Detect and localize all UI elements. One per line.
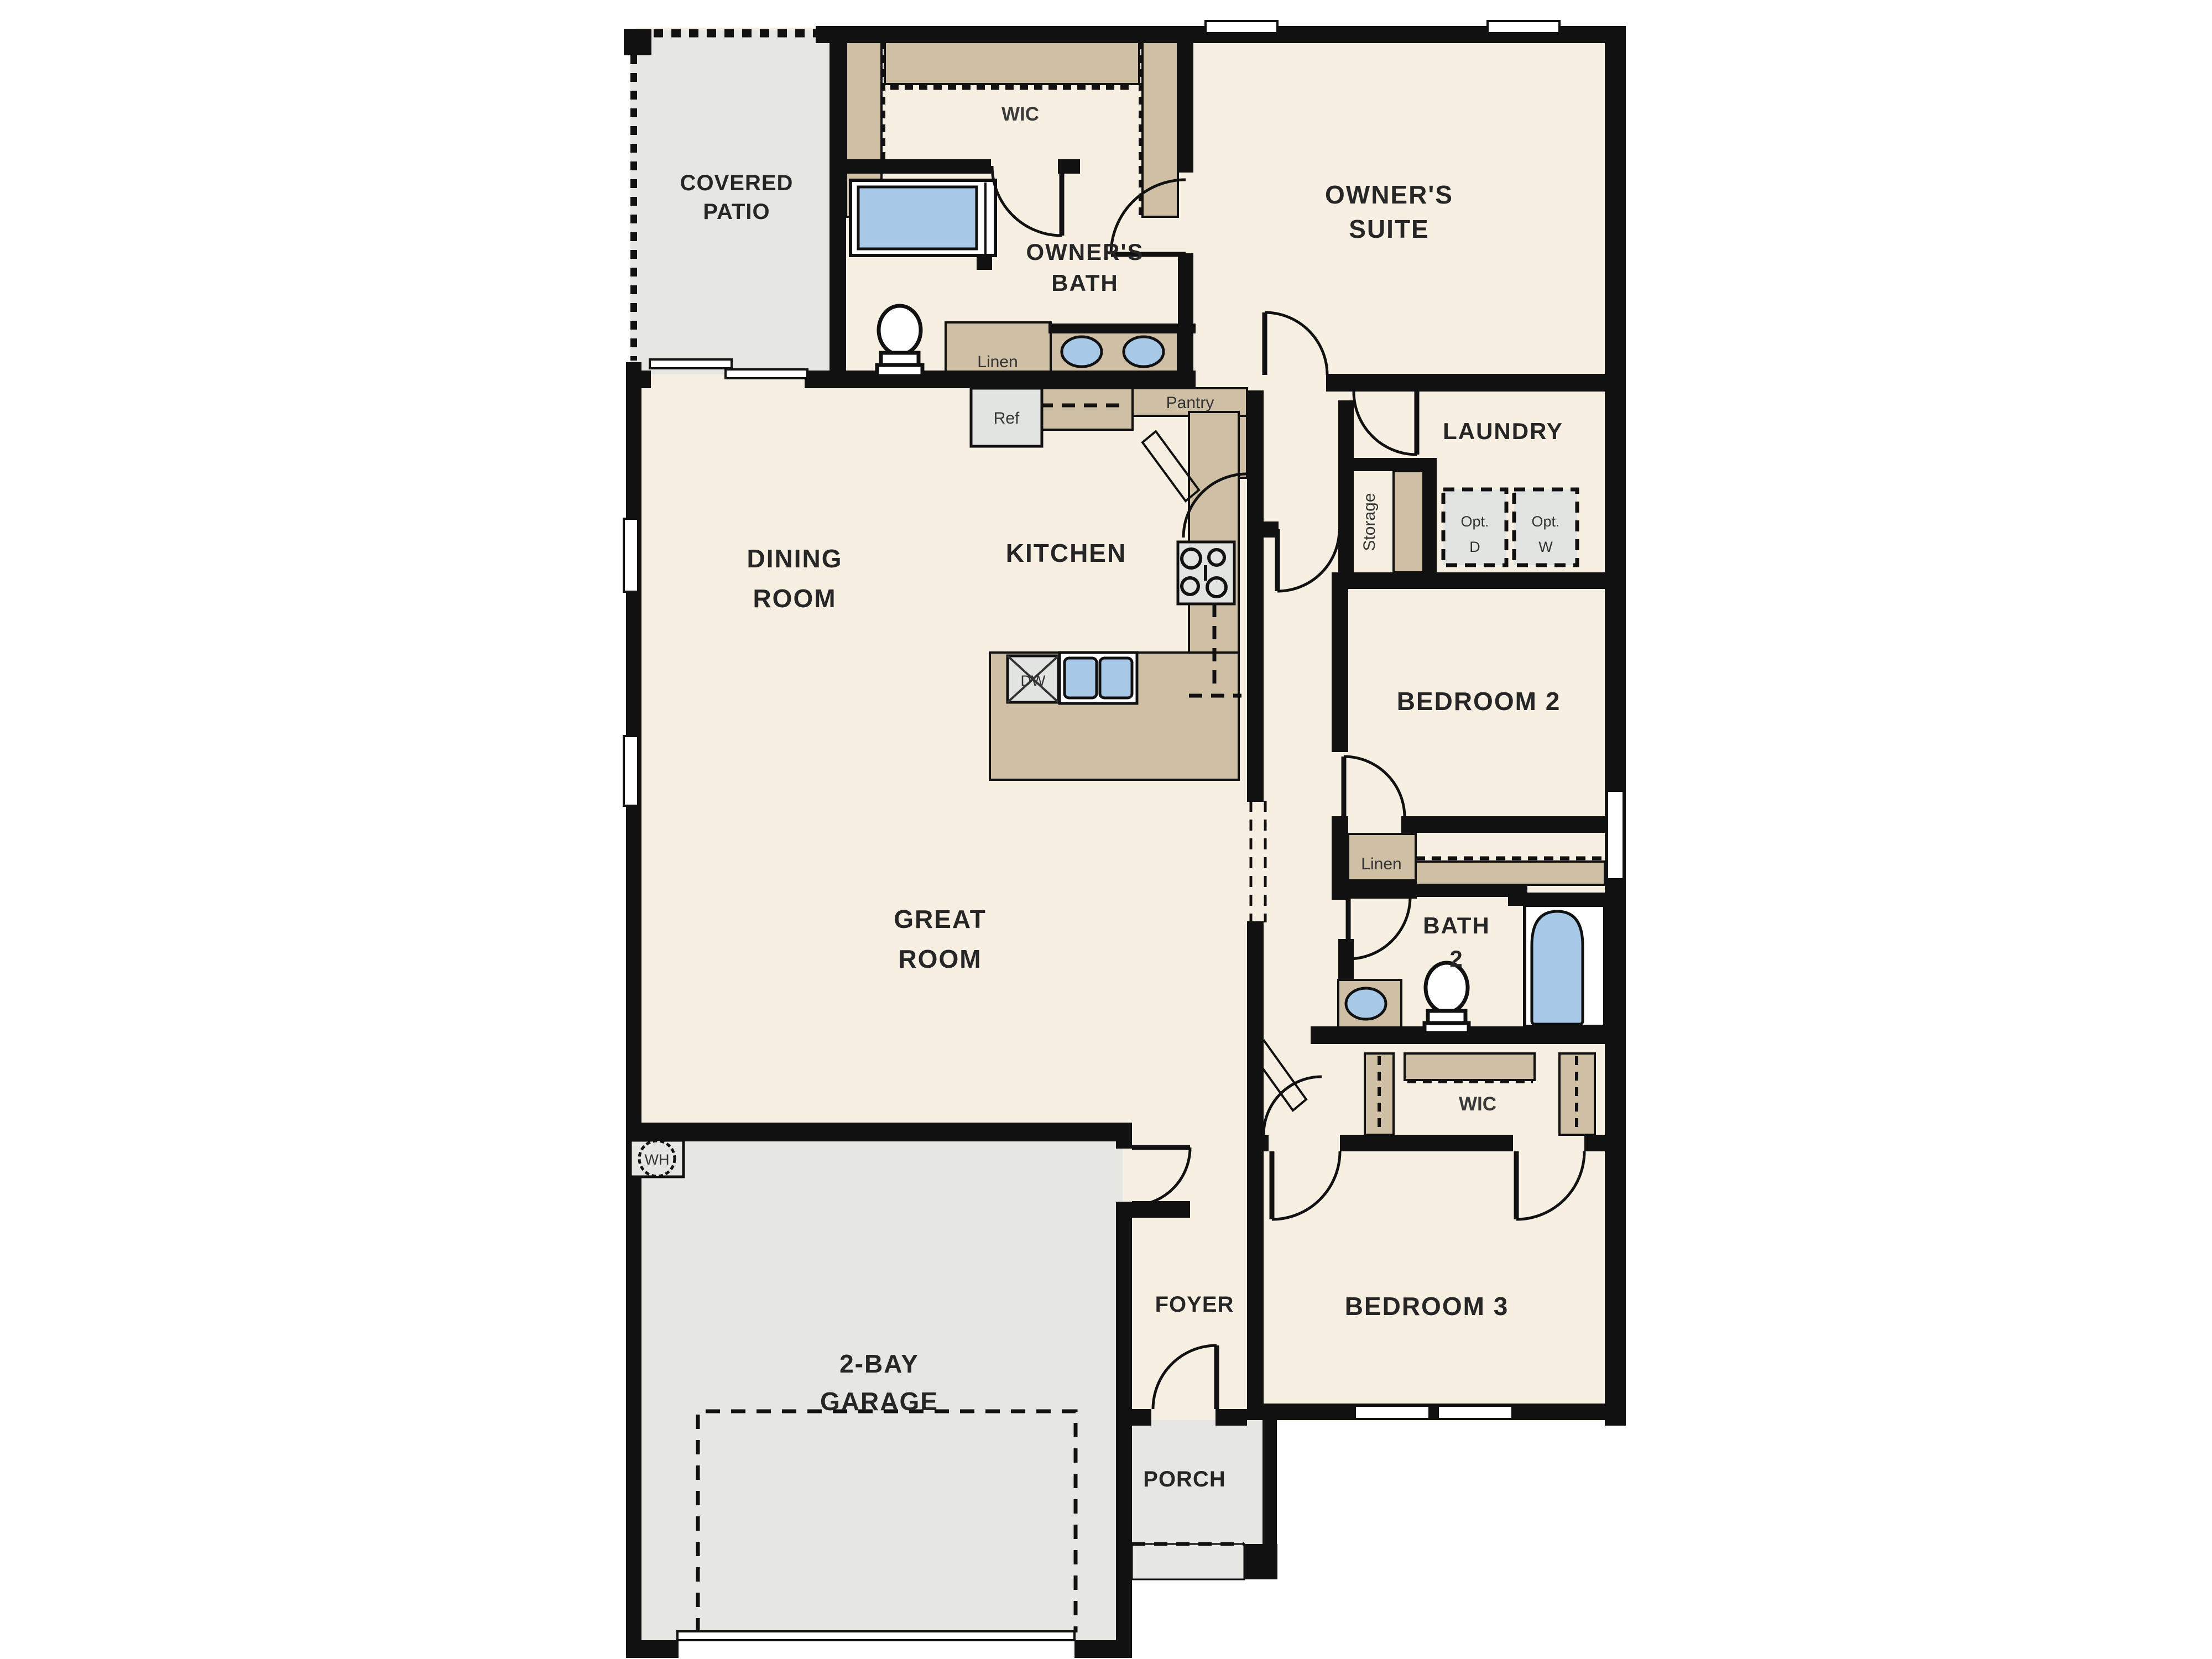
owners-sink-1: [1062, 337, 1102, 367]
great-room-label-1: GREAT: [894, 905, 987, 933]
cooktop: [1178, 542, 1234, 604]
wic-bedroom3-label: WIC: [1459, 1093, 1496, 1115]
ref-label: Ref: [994, 409, 1020, 427]
bedroom2-label: BEDROOM 2: [1397, 687, 1561, 716]
garage-label-1: 2-BAY: [839, 1349, 919, 1378]
opt-dryer-label-1: Opt.: [1460, 513, 1489, 530]
bath2-tub: [1525, 905, 1605, 1026]
bed2-closet-shelf: [1416, 862, 1605, 885]
opt-washer-label-2: W: [1538, 539, 1553, 555]
pantry-label: Pantry: [1166, 394, 1214, 412]
suite-window-2: [1488, 21, 1559, 33]
opt-dryer-label-2: D: [1469, 539, 1480, 555]
kitchen-label: KITCHEN: [1006, 539, 1126, 567]
owners-suite-label-1: OWNER'S: [1325, 180, 1453, 209]
suite-window-1: [1206, 21, 1277, 33]
foyer-label: FOYER: [1155, 1292, 1234, 1317]
wic2-shelf-top: [1405, 1053, 1535, 1080]
opt-washer-label-1: Opt.: [1531, 513, 1559, 530]
dining-window-1: [624, 519, 638, 592]
bedroom3-window-2: [1438, 1406, 1512, 1419]
covered-patio-label-2: PATIO: [703, 200, 770, 224]
water-heater-label: WH: [645, 1151, 670, 1168]
porch-step: [1132, 1544, 1244, 1579]
owners-toilet: [877, 306, 922, 376]
dining-room-label-1: DINING: [747, 544, 843, 573]
dining-room-label-2: ROOM: [753, 584, 836, 613]
linen-owner-label: Linen: [977, 353, 1018, 371]
bedroom2-window: [1607, 791, 1624, 879]
garage-floor: [636, 1133, 1123, 1640]
bath2-toilet: [1425, 963, 1469, 1033]
storage-label: Storage: [1360, 493, 1379, 551]
bath2-label-1: BATH: [1423, 912, 1490, 938]
kitchen-counter-north: [1042, 388, 1133, 430]
floor-plan: COVERED PATIO WIC OWNER'S BATH OWNER'S S…: [0, 0, 2212, 1659]
wic-shelf-top: [885, 39, 1139, 84]
bedroom3-window-1: [1355, 1406, 1430, 1419]
owners-suite-label-2: SUITE: [1349, 215, 1429, 243]
owners-bath-label-2: BATH: [1051, 270, 1119, 296]
dishwasher-label: DW: [1021, 672, 1046, 689]
bath2-sink: [1346, 988, 1386, 1019]
garage-door: [677, 1631, 1074, 1640]
wic-owner-label: WIC: [1001, 103, 1039, 125]
dining-window-2: [624, 736, 638, 806]
storage-shelf: [1394, 471, 1423, 572]
owners-sink-2: [1124, 337, 1164, 367]
covered-patio-label-1: COVERED: [680, 171, 794, 195]
owners-shower: [851, 180, 995, 255]
kitchen-sink: [1060, 653, 1137, 703]
owners-bath-label-1: OWNER'S: [1026, 239, 1144, 265]
great-room-label-2: ROOM: [898, 945, 982, 973]
porch-label: PORCH: [1143, 1467, 1225, 1491]
garage-label-2: GARAGE: [820, 1387, 938, 1416]
bedroom3-label: BEDROOM 3: [1345, 1292, 1509, 1321]
linen-hall-label: Linen: [1361, 855, 1401, 873]
bath2-label-2: 2: [1449, 946, 1463, 972]
laundry-label: LAUNDRY: [1443, 418, 1563, 444]
